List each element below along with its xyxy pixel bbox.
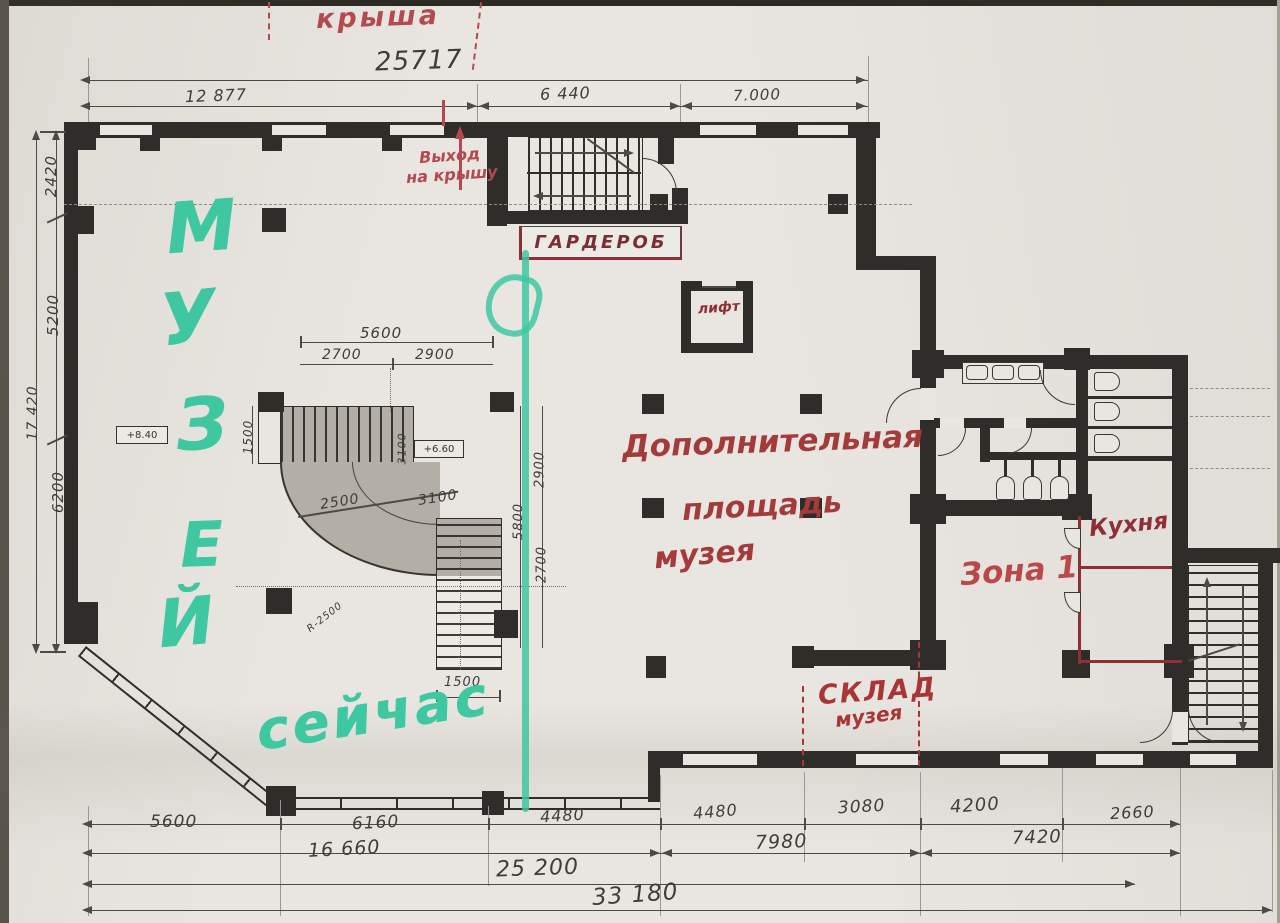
dim-label: 33 180 <box>591 879 679 911</box>
museum-letter: Й <box>155 582 217 664</box>
axis-line <box>390 368 391 412</box>
stair-arrow-line <box>1242 585 1244 725</box>
dim-label: R-2500 <box>305 600 345 635</box>
arrow-icon <box>1170 849 1180 857</box>
dim-line <box>88 106 868 107</box>
roof-boundary-dash <box>268 2 270 40</box>
dim-tick <box>804 818 806 830</box>
arrow-icon <box>650 849 660 857</box>
extension-line <box>680 84 681 122</box>
elevator-door-line <box>702 286 736 288</box>
dim-tick <box>499 690 501 702</box>
stair-landing <box>507 136 529 212</box>
column <box>78 206 94 234</box>
zone1-label: Зона 1 <box>959 549 1079 593</box>
column <box>258 392 284 412</box>
column <box>262 208 286 232</box>
column <box>262 138 282 151</box>
axis-line <box>460 540 461 670</box>
arrow-icon <box>922 849 932 857</box>
storage-boundary-dash <box>802 686 804 766</box>
window-gap <box>700 125 756 135</box>
dim-label: 1500 <box>241 402 255 472</box>
door-gap <box>1172 712 1188 742</box>
column <box>800 394 822 414</box>
arrow-icon <box>82 880 92 888</box>
stall-divider <box>1088 456 1172 461</box>
dim-tick <box>660 818 662 830</box>
stair-treads-top <box>527 136 643 212</box>
stair-block-wall-right-lower <box>672 188 688 224</box>
toilet-icon <box>996 476 1015 500</box>
wall-storage-top <box>798 650 928 666</box>
photo-edge-left <box>0 0 9 923</box>
arrow-icon <box>82 820 92 828</box>
dim-label: 16 660 <box>307 836 381 862</box>
museum-letter: З <box>174 381 229 468</box>
stair-block-wall-bottom <box>487 210 679 224</box>
zone-door-glyph <box>1064 592 1081 613</box>
extension-line <box>88 58 89 122</box>
wall-north <box>64 122 880 138</box>
photo-edge-top <box>0 0 1280 6</box>
dim-label: 2420 <box>42 141 60 211</box>
museum-letter: У <box>156 273 220 362</box>
window-gap <box>1000 754 1048 765</box>
arrow-icon <box>479 102 489 110</box>
arrow-icon <box>624 149 634 157</box>
column <box>494 610 518 638</box>
wardrobe-box: ГАРДЕРОБ <box>519 226 682 260</box>
dim-label: 4200 <box>949 793 1000 817</box>
column <box>266 588 292 614</box>
dim-label: 6160 <box>352 812 400 834</box>
arrow-icon <box>910 849 920 857</box>
level-label: +6.60 <box>424 444 455 455</box>
washroom-wall-inner-v <box>1076 369 1088 500</box>
stair-landing <box>258 406 282 464</box>
dim-label: 7980 <box>755 830 808 854</box>
door-arc <box>1040 370 1075 405</box>
museum-letter: М <box>163 184 238 271</box>
arrow-icon <box>80 102 90 110</box>
dim-label: 6200 <box>49 457 67 527</box>
axis-line <box>1190 416 1270 417</box>
toilet-icon <box>1094 434 1120 453</box>
column <box>140 138 160 151</box>
arrow-icon <box>82 849 92 857</box>
stair-arrow-line <box>535 152 625 154</box>
wall-northeast <box>856 122 876 270</box>
door-arc <box>886 388 921 423</box>
additional-area-label-line3: музея <box>653 533 757 577</box>
now-label: сейчас <box>252 664 495 763</box>
dim-label: 2900 <box>415 347 455 363</box>
level-box: +6.60 <box>414 440 464 458</box>
stair-arrow-line <box>541 195 631 197</box>
museum-letter: Е <box>179 507 224 581</box>
dim-label: 25717 <box>375 44 464 77</box>
dim-line <box>300 342 493 343</box>
stall-divider <box>1088 426 1172 429</box>
window-gap <box>1096 754 1143 765</box>
dim-label: 5200 <box>44 280 62 350</box>
dim-tick <box>1062 818 1064 830</box>
roof-exit-dash <box>442 100 445 126</box>
extension-line <box>1272 770 1273 912</box>
column <box>482 791 504 815</box>
extension-line <box>1180 768 1181 916</box>
column <box>1062 650 1090 678</box>
sink-icon <box>1018 365 1040 380</box>
dim-tick <box>920 818 922 830</box>
kitchen-label: Кухня <box>1088 508 1170 542</box>
door-arc <box>1006 428 1032 454</box>
door-arc <box>1140 710 1173 743</box>
stair-lower-flight <box>436 518 502 670</box>
elevator-label: лифт <box>696 298 741 317</box>
window-gap <box>1190 754 1236 765</box>
arrow-icon <box>1239 722 1247 732</box>
column <box>64 602 98 644</box>
extension-line <box>920 772 921 916</box>
sink-icon <box>992 365 1014 380</box>
column <box>642 394 664 414</box>
arrow-icon <box>856 102 866 110</box>
window-gap <box>856 754 918 765</box>
floor-plan-photo: ГАРДЕРОБ лифт <box>0 0 1280 923</box>
toilet-icon <box>1050 476 1069 500</box>
arrow-icon <box>80 76 90 84</box>
extension-line <box>1062 768 1063 862</box>
dim-tick <box>300 336 302 348</box>
green-marker-loop <box>479 268 546 341</box>
column <box>382 138 402 151</box>
column <box>490 392 514 412</box>
door-arc <box>938 428 966 456</box>
door-gap <box>940 418 964 428</box>
zone-door-glyph <box>1064 528 1081 549</box>
extension-line <box>477 84 478 122</box>
dim-label: 3100 <box>396 414 409 484</box>
dim-label: 5600 <box>150 812 197 832</box>
dim-line <box>300 364 493 365</box>
dim-tick <box>392 358 394 370</box>
arrow-icon <box>662 849 672 857</box>
window-gap <box>100 125 152 135</box>
arrow-icon <box>32 130 40 140</box>
arrow-icon <box>1170 820 1180 828</box>
arrow-icon <box>1125 880 1135 888</box>
stair-landing-line <box>527 172 641 174</box>
dim-label: 2900 <box>533 435 548 505</box>
dim-label: 4480 <box>539 804 585 826</box>
stair-upper-flight <box>280 406 414 464</box>
dim-label: 2660 <box>1110 802 1156 823</box>
dim-label: 5600 <box>360 324 402 342</box>
arrow-icon <box>856 76 866 84</box>
level-box: +8.40 <box>116 426 168 444</box>
arrow-icon <box>670 102 680 110</box>
arrow-icon <box>32 644 40 654</box>
dim-label: 4480 <box>692 800 738 823</box>
dim-tick <box>280 818 282 830</box>
window-gap <box>272 125 326 135</box>
axis-line <box>236 586 566 587</box>
arrow-icon <box>52 644 60 654</box>
window-gap <box>798 125 848 135</box>
dim-label: 2700 <box>322 347 362 363</box>
additional-area-label-line1: Дополнительная <box>621 419 923 465</box>
zone-partition-line <box>1080 566 1172 569</box>
roof-label: крыша <box>315 0 440 35</box>
column <box>646 656 666 678</box>
dim-label: 3080 <box>838 796 886 818</box>
dim-tick <box>492 336 494 348</box>
zone-partition-line <box>1080 660 1182 663</box>
column <box>642 498 664 518</box>
storage-boundary-dash <box>918 642 920 766</box>
extension-line <box>868 56 869 122</box>
door-gap <box>920 388 936 420</box>
wall-south-glazed <box>284 797 660 810</box>
arrow-icon <box>1262 906 1272 914</box>
washroom-wall-top <box>920 355 1188 369</box>
sink-icon <box>966 365 988 380</box>
wall-east-hall <box>920 256 936 668</box>
stair-block-wall-right-upper <box>658 122 674 164</box>
dim-line <box>88 824 1180 825</box>
toilet-icon <box>1094 372 1120 391</box>
dim-line <box>88 80 868 81</box>
roof-boundary-dash <box>472 2 482 70</box>
toilet-icon <box>1023 476 1042 500</box>
dim-label: 7.000 <box>733 85 782 105</box>
arrow-icon <box>52 130 60 140</box>
dim-label: 12 877 <box>185 85 248 106</box>
column <box>792 646 814 668</box>
door-gap <box>1004 418 1026 428</box>
wall-west <box>64 122 78 642</box>
arrow-icon <box>467 102 477 110</box>
dim-label: 6 440 <box>540 83 591 104</box>
axis-line <box>1190 468 1270 469</box>
arrow-icon <box>682 102 692 110</box>
column <box>64 122 96 150</box>
dim-tick <box>488 818 490 830</box>
arrow-icon <box>533 192 543 200</box>
dim-label: 25 200 <box>496 855 580 883</box>
dim-label: 7420 <box>1012 826 1063 849</box>
wardrobe-label: ГАРДЕРОБ <box>534 232 667 253</box>
axis-line <box>1190 388 1270 389</box>
dim-line <box>88 853 1180 854</box>
arrow-icon <box>1203 577 1211 587</box>
stall-divider <box>1088 396 1172 399</box>
column <box>1064 348 1090 370</box>
wall-diagonal-sw <box>78 646 284 814</box>
dim-label: 17 420 <box>25 378 41 448</box>
roof-exit-arrowhead-icon <box>455 126 465 139</box>
window-gap <box>683 754 757 765</box>
additional-area-label-line2: площадь <box>681 485 843 528</box>
toilet-icon <box>1094 402 1120 421</box>
window-gap <box>390 125 444 135</box>
level-label: +8.40 <box>127 430 158 441</box>
arrow-icon <box>82 906 92 914</box>
dim-line <box>88 910 1272 911</box>
dim-label: 2700 <box>535 530 550 600</box>
